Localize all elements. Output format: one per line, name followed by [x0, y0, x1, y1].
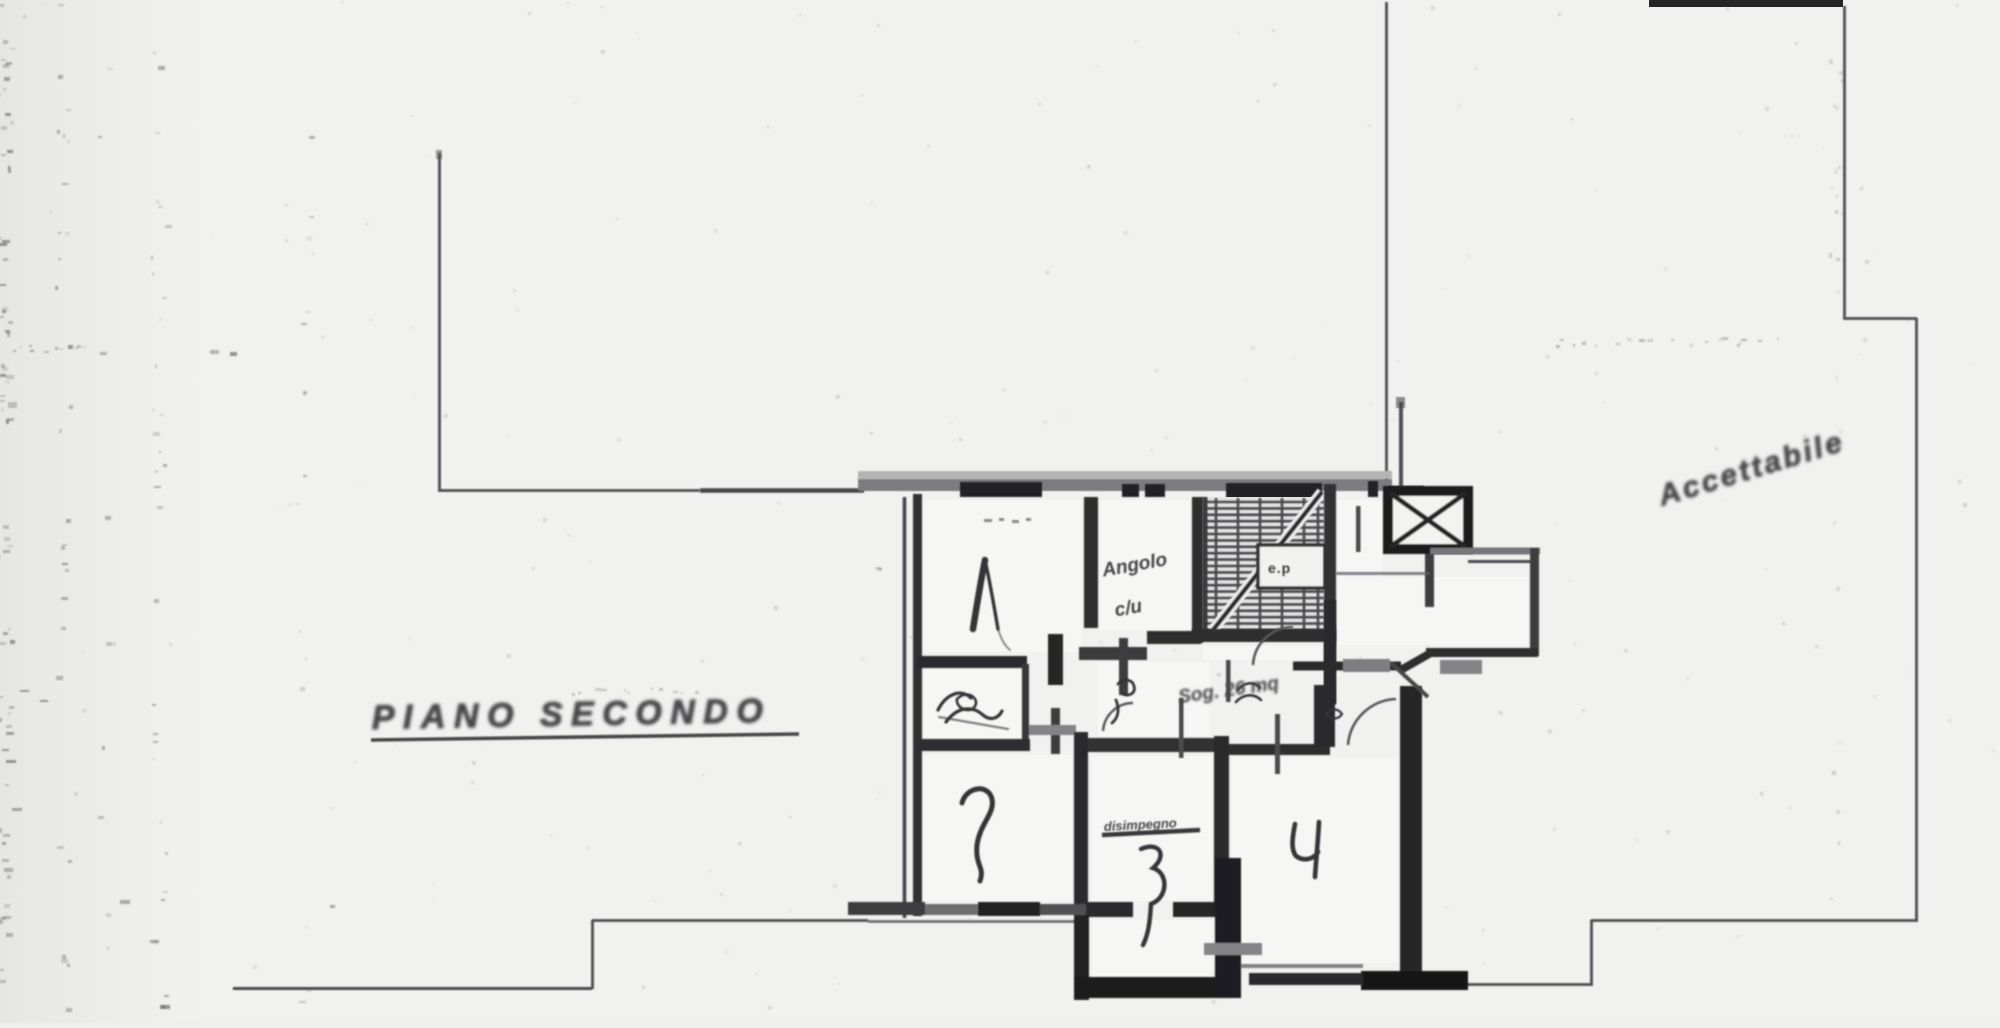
- svg-text:PIANO SECONDO: PIANO SECONDO: [371, 692, 771, 737]
- svg-text:e.p: e.p: [1268, 560, 1291, 576]
